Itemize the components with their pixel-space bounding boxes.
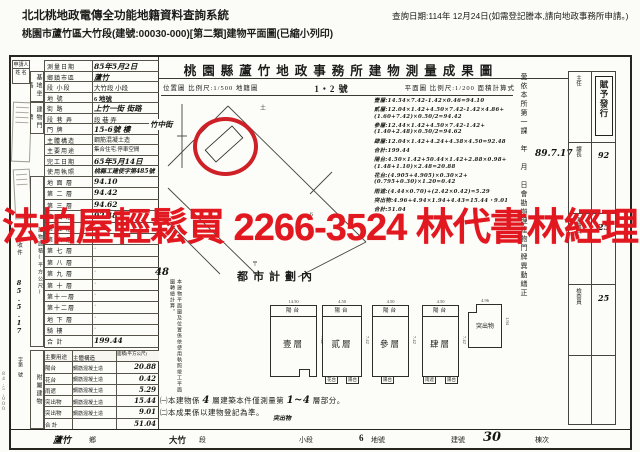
floor-total: 199.44: [93, 336, 159, 346]
unit-label: 棟次: [535, 435, 549, 445]
annex-structure: 鋼筋混凝土造: [73, 396, 117, 406]
annex-tab: 陽台: [445, 376, 458, 384]
floor-plan-label: 壹層: [271, 338, 316, 350]
info-value: 集合住宅.停車空間: [93, 145, 159, 155]
plan-note-number-hw: 48: [155, 267, 169, 278]
info-row: 鄉鎮市區蘆竹: [45, 72, 159, 83]
dimension-label: 4.50: [323, 299, 361, 304]
floor-row: 第 八 層·: [45, 257, 159, 268]
balcony-strip: 陽台: [423, 306, 458, 317]
annex-row: 陽台鋼筋混凝土造20.88: [45, 362, 159, 373]
floor-row: 地 下 層·: [45, 314, 159, 325]
floor-value: 94.10: [93, 177, 159, 187]
floor-plan-label: 肆層: [423, 338, 458, 350]
info-value: 6 地號: [93, 93, 159, 103]
floor-row: 騎 樓·: [45, 325, 159, 336]
floor-plan-4F: 陽台 肆層 4.50 7.42 雨遮 陽台: [422, 305, 459, 377]
section-name: 大竹: [169, 434, 186, 446]
annex-tab: 陽台: [346, 376, 359, 384]
note-text: 層部分。: [313, 396, 345, 405]
floor-plan-penthouse: 突出物 4.96 1.94: [468, 304, 502, 348]
floor-label: 第 九 層: [45, 268, 93, 278]
floor-row: 第 九 層·: [45, 268, 159, 279]
annex-structure: 鋼筋混凝土造: [73, 407, 117, 417]
floor-row: 第十一層·: [45, 291, 159, 302]
note-line-1: ㈠本建物係 4 層建築本件僅測量第 1~4 層部分。: [160, 395, 345, 406]
info-row: 段 巷 弄段 巷 弄: [45, 114, 159, 125]
document-viewer-page: 北北桃地政電傳全功能地籍資料查詢系統 查詢日期:114年 12月24日(如需登記…: [0, 0, 640, 452]
signoff-mark-hw: 25: [598, 293, 609, 303]
annex-area: 0.42: [117, 374, 159, 384]
form-title: 桃園縣蘆竹地政事務所建物測量成果圖: [151, 60, 531, 79]
formula-line: 合計:199.44: [374, 148, 512, 154]
annex-row: 雨遮鋼筋混凝土造5.29: [45, 385, 159, 396]
floor-label: 第 十 層: [45, 280, 93, 290]
office-note-date-hw: 89.7.17: [535, 149, 573, 159]
balcony-strip: 陽台: [271, 306, 316, 317]
annex-use: 花台: [45, 374, 73, 384]
floor-row: 合 計199.44: [45, 336, 159, 347]
info-label: 街 路: [45, 103, 93, 113]
plan-note: 本建物平面圖及位置係依使用執照竣工平面圖轉繪計算。: [168, 279, 182, 397]
note-hw-number: 1~4: [287, 395, 311, 406]
building-number-label: 建號: [451, 435, 465, 445]
bottom-bar: 蘆竹 鄉 大竹 段 小段 6 地號 建號 30 棟次: [11, 429, 630, 449]
annex-use: 突出物: [45, 396, 73, 406]
dimension-label: 4.50: [423, 299, 458, 304]
floor-value: ·: [93, 325, 159, 335]
info-label: 鄉鎮市區: [45, 72, 93, 82]
annex-structure: 鋼筋混凝土造: [73, 385, 117, 395]
query-date: 查詢日期:114年 12月24日(如需登記謄本,請向地政事務所申請。): [392, 10, 628, 22]
floor-plan-1F: 陽台 壹層 14.50 7.42: [270, 305, 317, 377]
floor-label: 第 八 層: [45, 257, 93, 267]
formula-line: 參層:12.44×1.42+4.50×7.42-1.42+(1.40+2.48)…: [374, 123, 512, 135]
note-text: 層建築本件僅測量第: [212, 396, 284, 405]
floor-row: 第十二層·: [45, 302, 159, 313]
signoff-role: 主任: [574, 75, 582, 86]
note-line-2: ㈡本成果係以建物登記為準。: [160, 407, 264, 418]
info-label: 完工日期: [45, 156, 93, 166]
group-annex: 附屬建物: [30, 350, 44, 429]
town-suffix: 鄉: [89, 435, 96, 445]
section-suffix: 段: [199, 435, 206, 445]
info-label: 使用執照: [45, 166, 93, 176]
dimension-label: 14.50: [271, 299, 316, 304]
annex-tab: 雨遮: [423, 376, 436, 384]
info-row: 主體構造鋼筋混凝土造: [45, 135, 159, 146]
annex-structure: [73, 419, 117, 429]
formula-line: 花台:(4.905+4.905)×0.30×2+(0.795+0.30)×1.2…: [374, 173, 512, 185]
floor-value: ·: [93, 314, 159, 324]
floor-value: ·: [93, 268, 159, 278]
floor-value: ·: [93, 280, 159, 290]
formula-line: 肆層:12.04×1.42+4.24+4.38×4.50=92.48: [374, 139, 512, 145]
signoff-role: 檢查員: [574, 288, 582, 305]
info-row: 主要用途集合住宅.停車空間: [45, 145, 159, 156]
signoff-role: 課長: [574, 146, 582, 157]
floor-label: 第十二層: [45, 302, 93, 312]
info-label: 主要用途: [45, 145, 93, 155]
balcony-strip: 陽台: [373, 306, 408, 317]
svg-text:〒: 〒: [252, 261, 258, 268]
floor-plan-3F: 陽台 參層 4.50 7.42 陽台: [372, 305, 409, 377]
info-value: 上竹一街 街路: [93, 103, 159, 113]
dimension-label: 7.42: [462, 336, 467, 344]
annex-row: 花台鋼筋混凝土造0.42: [45, 374, 159, 385]
dimension-label: 4.96: [469, 298, 501, 303]
annex-header: 主體構造: [73, 351, 117, 361]
info-row: 街 路上竹一街 街路: [45, 103, 159, 114]
annex-structure: 鋼筋混凝土造: [73, 374, 117, 384]
urban-plan-zone: 都市計劃內: [237, 268, 317, 284]
info-row: 地 號6 地號: [45, 93, 159, 104]
info-value: 鋼筋混凝土造: [93, 135, 159, 145]
formula-line: 雨遮:(4.44×0.70)+(2.42×0.42)=5.29: [374, 189, 512, 195]
street-name-hw: 竹中街: [149, 119, 174, 130]
annex-area: 5.29: [117, 385, 159, 395]
receipt-date: 85.5.17: [15, 279, 23, 349]
floor-plan-label: 參層: [373, 338, 408, 350]
formula-line: 陽台:4.50×1.42+50.44×1.42+2.88×0.98+(1.48+…: [374, 157, 512, 169]
annex-use: 突出物: [45, 407, 73, 417]
info-value: 85年5月2日: [93, 61, 159, 71]
info-row: 使用執照桃縣工建使字第485號: [45, 166, 159, 177]
building-number: 1・2 號: [314, 82, 348, 95]
annex-header-row: 主要用途 主體構造 面積(平方公尺): [45, 351, 159, 362]
plan-scale: 平面圖 比例尺:1/200 面積計算式: [405, 82, 515, 95]
annex-tab: 陽台: [381, 376, 394, 384]
note-hw-number: 4: [202, 395, 209, 406]
dimension-label: 1.94: [505, 317, 510, 325]
note-text: ㈠本建物係: [160, 396, 200, 405]
group-site: 基地坐落: [30, 71, 44, 103]
floor-label: 騎 樓: [45, 325, 93, 335]
annex-row: 突出物鋼筋混凝土造15.44: [45, 396, 159, 407]
info-label: 主體構造: [45, 135, 93, 145]
annex-header: 主要用途: [45, 351, 73, 361]
print-subtitle: 桃園市蘆竹區大竹段(建號:00030-000)[第二類]建物平面圖(已縮小列印): [22, 25, 333, 40]
info-row: 完工日期65年5月14日: [45, 156, 159, 167]
red-circle-annotation: [193, 117, 258, 176]
info-row: 測量日期85年5月2日: [45, 61, 159, 72]
applicant-name-label: 姓 名: [13, 68, 29, 76]
annex-tab: 花台: [325, 376, 338, 384]
annex-structure: 鋼筋混凝土造: [73, 362, 117, 372]
floor-value: ·: [93, 291, 159, 301]
lot-suffix: 地號: [371, 435, 385, 445]
annex-area: 9.01: [117, 407, 159, 417]
dimension-label: 7.42: [412, 336, 417, 344]
applicant-label: 申請人: [13, 61, 29, 68]
annex-area: 15.44: [117, 396, 159, 406]
lot-number: 6: [359, 433, 364, 443]
floor-row: 地 面 層94.10: [45, 177, 159, 188]
dimension-label: 7.42: [365, 336, 370, 344]
seal-stamp: [11, 102, 32, 163]
floor-label: 地 面 層: [45, 177, 93, 187]
info-value: 蘆竹: [93, 72, 159, 82]
balcony-strip: 陽台: [323, 306, 361, 317]
building-number-hw: 30: [483, 430, 501, 445]
group-door: 建物門牌: [30, 102, 44, 134]
receipt-number-label: 字第 號: [16, 357, 23, 417]
annex-total: 51.04: [117, 419, 159, 429]
floor-label: 合 計: [45, 336, 93, 346]
floor-label: 地 下 層: [45, 314, 93, 324]
floor-value: ·: [93, 302, 159, 312]
location-map-scale: 位置圖 比例尺:1/500 地籍圖: [163, 82, 258, 95]
info-value: 65年5月14日: [93, 156, 159, 166]
signoff-mark-hw: 92: [598, 150, 609, 160]
annex-area: 20.88: [117, 362, 159, 372]
info-label: 段 小段: [45, 82, 93, 92]
survey-form: 桃園縣蘆竹地政事務所建物測量成果圖 位置圖 比例尺:1/500 地籍圖 1・2 …: [9, 55, 632, 450]
annex-use: 陽台: [45, 362, 73, 372]
subsection-label: 小段: [299, 435, 313, 445]
info-value: 桃縣工建使字第485號: [93, 166, 159, 176]
info-label: 測量日期: [45, 61, 93, 71]
annex-header: 面積(平方公尺): [117, 351, 159, 361]
annex-row: 突出物鋼筋混凝土造9.01: [45, 407, 159, 418]
system-title: 北北桃地政電傳全功能地籍資料查詢系統: [22, 7, 229, 23]
floor-value: ·: [93, 257, 159, 267]
floor-plan-label: 貳層: [323, 338, 361, 350]
town-name-hw: 蘆竹: [53, 433, 71, 446]
svg-text:土: 土: [260, 104, 266, 112]
info-label: 地 號: [45, 93, 93, 103]
formula-line: 貳層:12.04×1.42+4.50×7.42-1.42×4.86+(1.60+…: [374, 107, 512, 119]
floor-row: 第 十 層·: [45, 280, 159, 291]
info-row: 門 牌15-6號 樓: [45, 124, 159, 135]
annex-use: 合 計: [45, 419, 73, 429]
info-label: 段 巷 弄: [45, 114, 93, 124]
floor-plan-label: 突出物: [469, 321, 501, 330]
info-label: 門 牌: [45, 124, 93, 134]
annex-use: 雨遮: [45, 385, 73, 395]
print-code: 84.5,000: [1, 372, 6, 412]
floor-label: 第十一層: [45, 291, 93, 301]
watermark-ad: 法拍屋輕鬆買 2266-3524 林代書林經理: [2, 196, 640, 251]
formula-line: 壹層:14.54×7.42-1.42×0.46=94.10: [374, 98, 512, 104]
info-row: 段 小段大竹段 小段: [45, 82, 159, 93]
issue-stamp: 賦予發行: [595, 76, 613, 136]
note-hw-annotation: 突出物: [273, 413, 291, 422]
info-value: 大竹段 小段: [93, 82, 159, 92]
floor-plan-2F: 陽台 貳層 4.50 7.42 花台 陽台: [322, 305, 362, 377]
dimension-label: 4.50: [373, 299, 408, 304]
